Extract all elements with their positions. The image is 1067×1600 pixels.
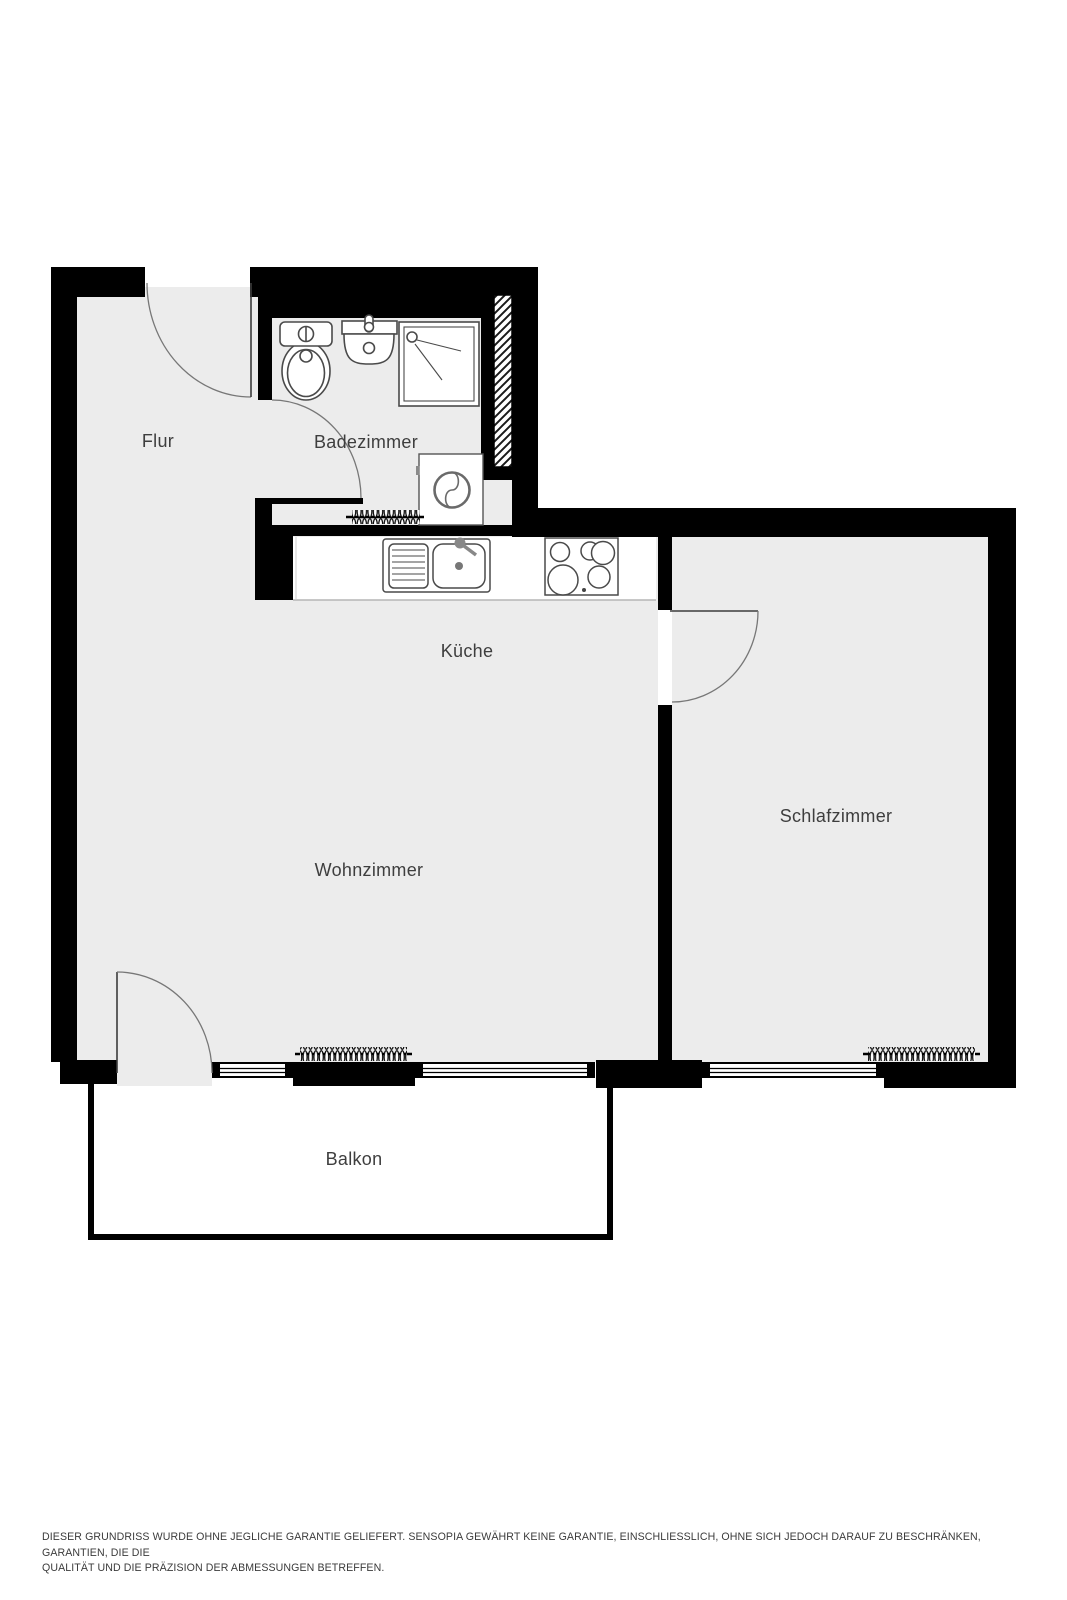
room-label-kueche: Küche: [441, 641, 494, 661]
wall-segment: [658, 537, 672, 610]
wall-segment: [884, 1062, 1016, 1088]
stove-icon: [545, 538, 618, 595]
disclaimer-line-2: QUALITÄT UND DIE PRÄZISION DER ABMESSUNG…: [42, 1561, 1047, 1577]
wall-segment: [520, 508, 995, 537]
floor-kueche-right: [538, 537, 658, 1062]
window: [702, 1062, 884, 1078]
floor-entrance-threshold: [145, 287, 250, 297]
room-label-schlafzimmer: Schlafzimmer: [780, 806, 893, 826]
room-label-badezimmer: Badezimmer: [314, 432, 418, 452]
balcony-wall-left: [88, 1082, 94, 1240]
window: [212, 1062, 293, 1078]
room-label-wohnzimmer: Wohnzimmer: [315, 860, 424, 880]
wall-segment: [255, 498, 272, 528]
floorplan-page: Flur Badezimmer Küche Wohnzimmer Schlafz…: [0, 0, 1067, 1600]
wall-segment: [481, 295, 494, 480]
radiator-icon: [863, 1047, 980, 1061]
floor-balcony-door-gap: [117, 1062, 212, 1086]
toilet-icon: [280, 322, 332, 400]
wall-segment: [293, 1062, 415, 1086]
disclaimer-line-1: DIESER GRUNDRISS WURDE OHNE JEGLICHE GAR…: [42, 1530, 1047, 1561]
room-label-balkon: Balkon: [326, 1149, 383, 1169]
wall-segment: [258, 267, 272, 400]
wall-segment: [272, 297, 490, 318]
balcony-wall-bottom: [88, 1234, 613, 1240]
wall-segment: [51, 267, 77, 1062]
floor-schlafzimmer: [672, 537, 988, 1062]
floorplan-drawing: Flur Badezimmer Küche Wohnzimmer Schlafz…: [0, 0, 1067, 1600]
shaft-hatch: [494, 295, 512, 467]
wall-segment: [255, 525, 293, 600]
shower-icon: [399, 322, 479, 406]
wall-segment: [988, 508, 1016, 1088]
wall-segment: [658, 705, 672, 1062]
disclaimer-text: DIESER GRUNDRISS WURDE OHNE JEGLICHE GAR…: [42, 1530, 1047, 1577]
wall-segment: [60, 1060, 117, 1084]
radiator-icon: [346, 510, 424, 524]
wall-segment: [250, 267, 538, 297]
washing-machine-icon: [416, 454, 483, 525]
wall-segment: [512, 267, 538, 537]
balcony-wall-right: [607, 1086, 613, 1240]
radiator-icon: [295, 1047, 412, 1061]
window: [415, 1062, 595, 1078]
bathroom-sink-icon: [342, 315, 397, 364]
wall-segment: [596, 1060, 702, 1088]
floor-flur-wohnzimmer: [77, 297, 538, 1062]
wall-segment: [481, 467, 512, 480]
room-label-flur: Flur: [142, 431, 174, 451]
kitchen-sink-icon: [383, 538, 490, 593]
wall-segment: [255, 525, 540, 536]
